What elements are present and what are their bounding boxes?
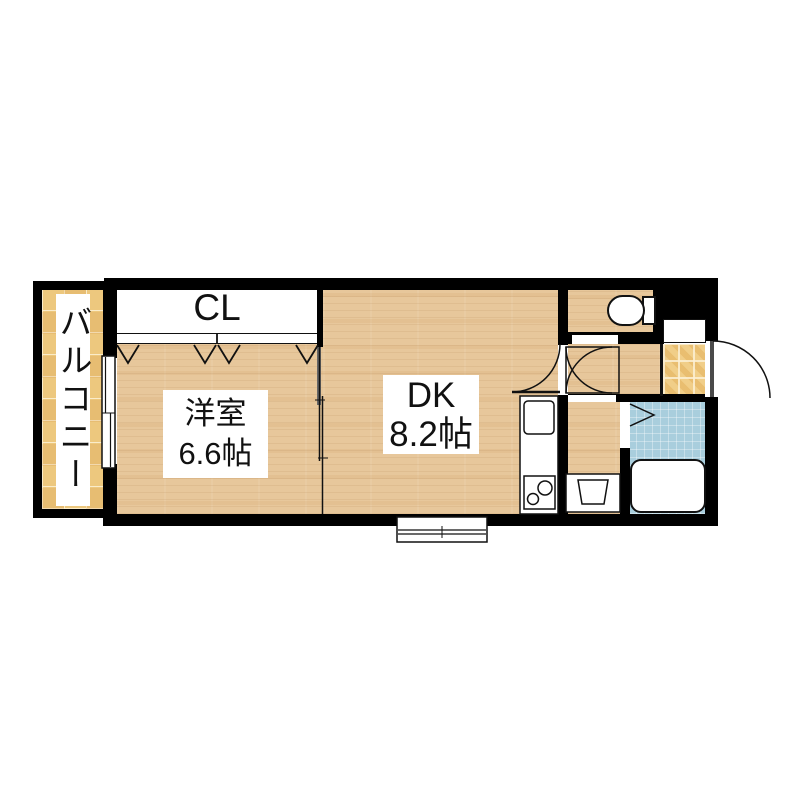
interior-door-icon [512,344,560,392]
sink-icon [524,401,554,434]
balcony-label-text: バルコニー [56,305,90,495]
western-room-label: 洋室 6.6帖 [163,390,268,478]
toilet-icon [608,296,655,325]
dk-area: 8.2帖 [389,415,473,454]
balcony-label: バルコニー [56,294,90,506]
western-room-name: 洋室 [185,394,247,434]
closet-label: CL [117,284,317,332]
closet-folding-doors-icon [117,333,318,363]
kitchen-window-icon [397,517,487,542]
entrance-door-icon [710,341,770,398]
dk-name: DK [407,376,456,415]
bathtub-icon [631,460,705,512]
dk-label: DK 8.2帖 [383,375,479,454]
floor-plan: バルコニー CL 洋室 6.6帖 DK 8.2帖 [0,0,800,800]
closet-label-text: CL [193,287,240,329]
western-room-area: 6.6帖 [178,434,252,474]
kitchen-counter [520,396,558,514]
folding-door-icon [630,404,654,426]
balcony-window-icon [102,356,115,468]
sliding-partition-icon [315,347,328,514]
hallway-doors-icon [566,347,619,393]
washing-machine-pan-icon [566,474,620,512]
